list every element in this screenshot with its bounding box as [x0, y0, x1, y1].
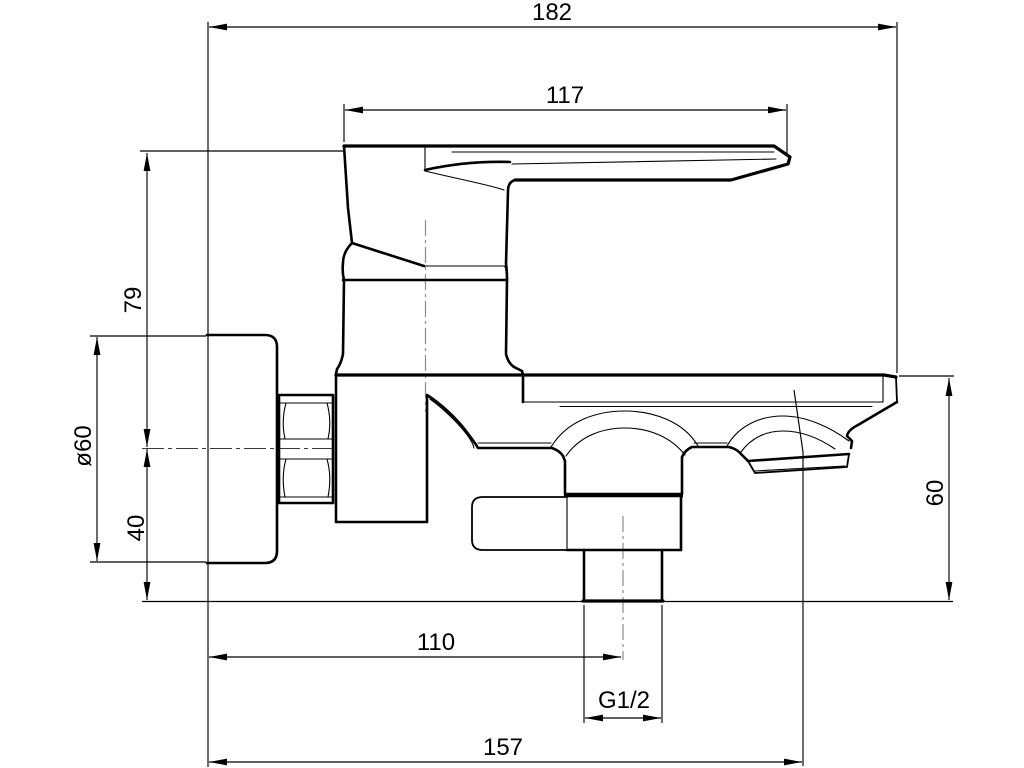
arrowhead	[946, 378, 953, 396]
spout-tip-underside	[847, 402, 897, 448]
diverter-block	[472, 495, 683, 550]
dimension-110: 110	[209, 629, 621, 660]
dim-dia60-label: ø60	[70, 425, 97, 466]
arrowhead	[643, 715, 661, 722]
dimension-40: 40	[123, 449, 150, 600]
dim-79-label: 79	[120, 287, 147, 314]
arrowhead	[94, 543, 101, 561]
dim-157-label: 157	[483, 734, 523, 761]
spout-underside-s-curve	[427, 395, 552, 448]
spout	[336, 375, 897, 494]
dimension-157: 157	[209, 734, 802, 765]
arrowhead	[878, 24, 896, 31]
faucet-technical-drawing: 182 117 79 ø60 40 60 110	[0, 0, 1024, 768]
dim-60-label: 60	[922, 480, 949, 507]
lever-handle	[343, 146, 790, 280]
dim-40-label: 40	[123, 515, 150, 542]
dimension-117: 117	[345, 82, 786, 113]
arrowhead	[94, 337, 101, 355]
left-arch-outer	[551, 411, 698, 447]
spout-top-edge	[336, 375, 896, 377]
arrowhead	[144, 582, 151, 600]
arrowhead	[209, 24, 227, 31]
dimension-dia60: ø60	[70, 337, 100, 561]
valve-body	[336, 280, 523, 522]
dim-110-label: 110	[417, 629, 455, 656]
dim-117-label: 117	[546, 82, 584, 109]
dimension-79: 79	[120, 153, 150, 447]
arrowhead	[784, 759, 802, 766]
arrowhead	[768, 107, 786, 114]
arrowhead	[603, 654, 621, 661]
aerator	[748, 454, 849, 473]
body-front-block	[336, 374, 427, 522]
dimension-g12: G1/2	[585, 687, 661, 721]
arrowhead	[946, 582, 953, 600]
arrowhead	[209, 654, 227, 661]
handle-knob-front-edge	[425, 162, 510, 170]
handle-knob-left-edge	[344, 146, 352, 243]
drawing-canvas: 182 117 79 ø60 40 60 110	[0, 0, 1024, 768]
centerlines	[142, 220, 623, 660]
arrowhead	[345, 107, 363, 114]
body-upper-right-edge	[506, 180, 515, 280]
left-arch-inner	[566, 428, 685, 456]
arrowhead	[209, 759, 227, 766]
dim-g12-label: G1/2	[598, 687, 650, 714]
dimension-182: 182	[209, 0, 896, 30]
right-arch-inner	[741, 431, 835, 452]
dimension-60: 60	[922, 378, 952, 600]
diverter-left-block	[472, 497, 567, 550]
arrowhead	[144, 449, 151, 467]
arrowhead	[144, 153, 151, 171]
arrowhead	[144, 429, 151, 447]
aerator-axis-extension-line	[794, 390, 803, 766]
arrowhead	[585, 715, 603, 722]
dim-182-label: 182	[532, 0, 572, 26]
